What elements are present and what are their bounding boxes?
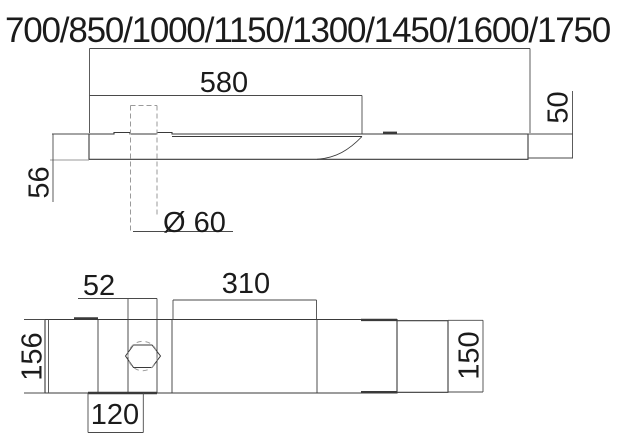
overall-length-options-label: 700/850/1000/1150/1300/1450/1600/1750 [5,13,610,48]
side-body-outline [89,134,528,159]
plan-internal-lines [98,320,317,394]
dim-56-label: 56 [26,153,55,213]
dim-50-label: 50 [545,78,574,138]
technical-drawing-canvas: 700/850/1000/1150/1300/1450/1600/1750 58… [0,0,618,442]
dim-156-label: 156 [19,327,48,387]
plan-body-right [397,321,448,393]
side-hidden-hole-lines [131,106,158,232]
dim-310-label: 310 [211,270,281,299]
dim-52-label: 52 [64,272,134,301]
dim-120-label: 120 [80,401,150,430]
hole-diameter-label: Ø 60 [163,209,226,238]
side-view-dimensions [50,49,573,232]
dim-580-label: 580 [186,69,262,98]
plan-view [45,318,448,393]
side-top-edge [89,133,528,135]
dim-150-label: 150 [456,326,485,386]
drawing-linework [0,0,618,442]
side-basin-slope-curve [317,137,362,160]
side-view [89,133,528,160]
plan-fixing-strips [74,318,397,393]
